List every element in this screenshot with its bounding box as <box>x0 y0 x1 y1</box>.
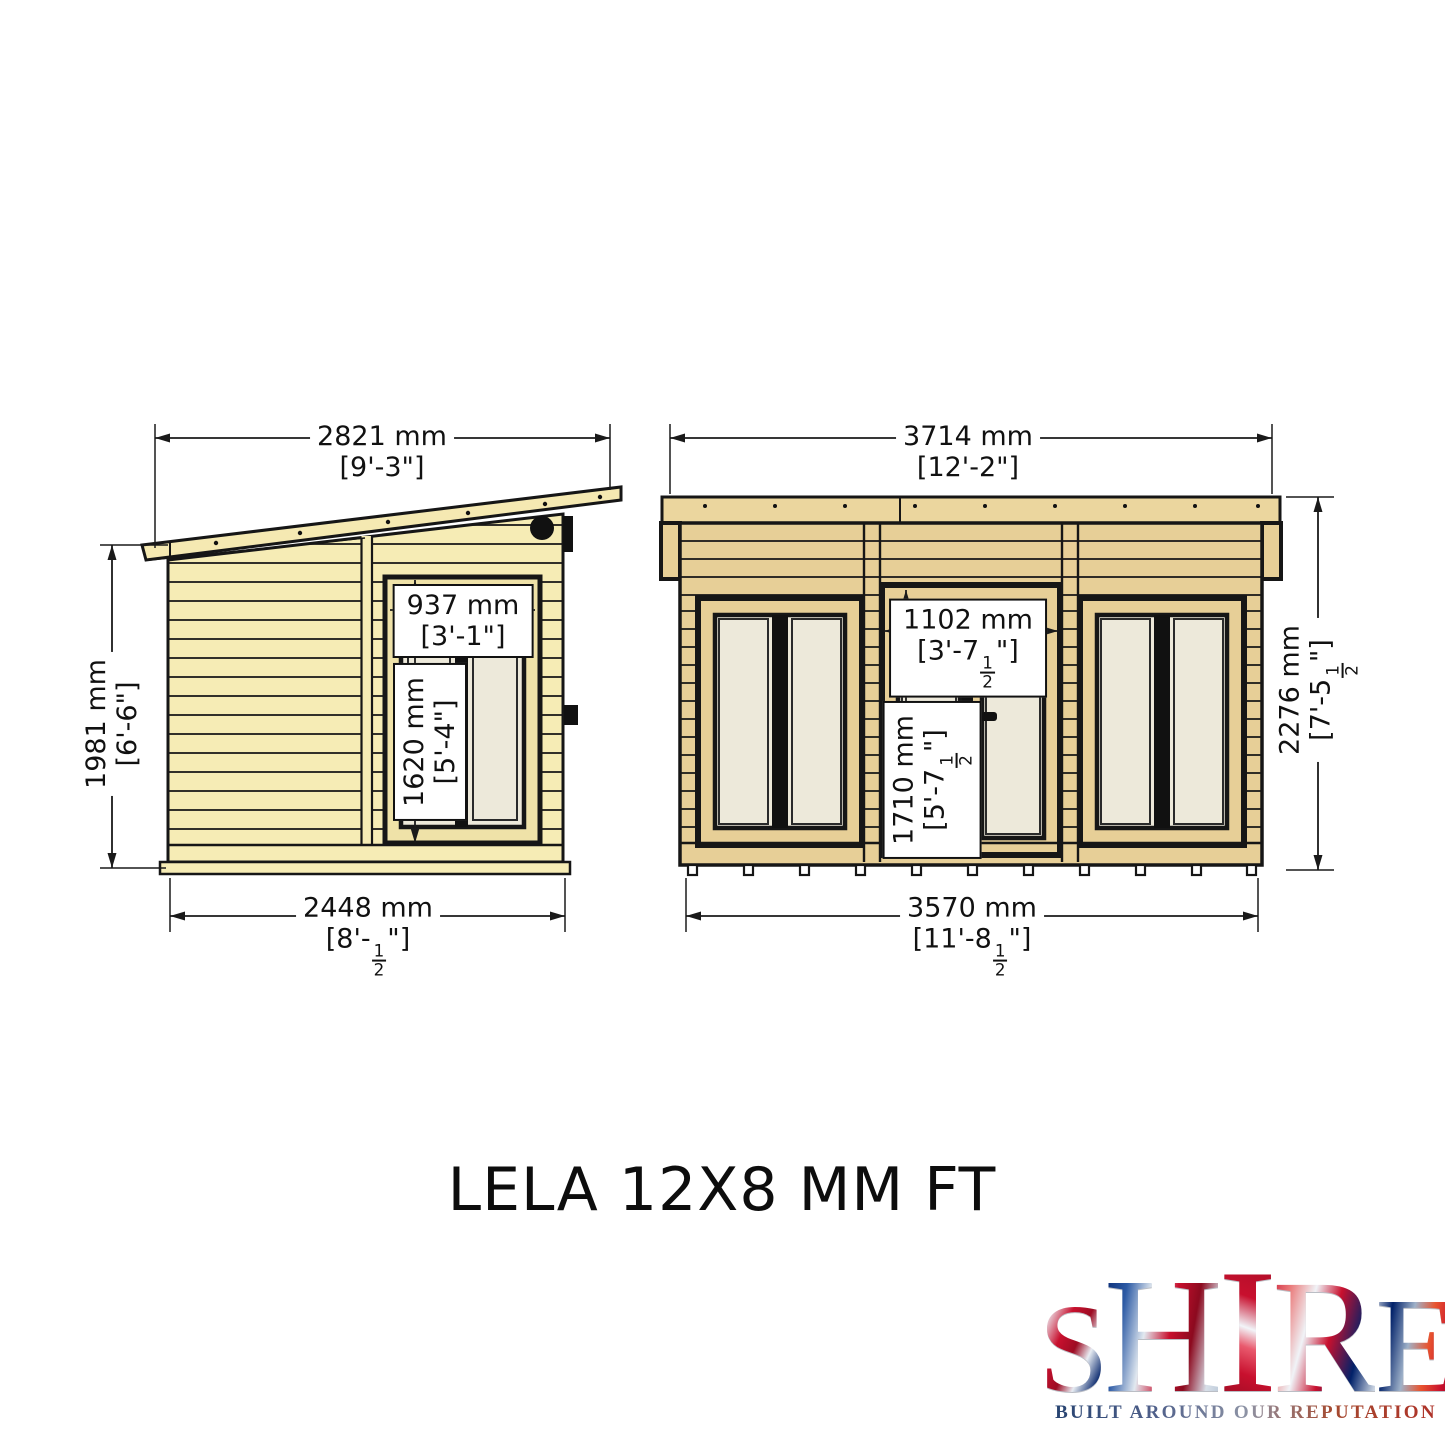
dim-mm: 1620 mm <box>399 677 430 807</box>
logo-letter-e: E <box>1375 1278 1445 1414</box>
dim-front-base-width: 3570 mm [11'-812"] <box>900 892 1044 981</box>
dim-mm: 1102 mm <box>903 605 1033 636</box>
dim-mm: 1710 mm <box>889 715 920 845</box>
dim-mm: 2448 mm <box>303 893 433 924</box>
side-door-latch <box>564 705 578 725</box>
elevation-line-art <box>0 0 1445 1445</box>
dim-side-wall-height: 1981 mm [6'-6"] <box>80 652 144 796</box>
dim-ft: [9'-3"] <box>317 452 447 483</box>
dim-front-overall-height: 2276 mm [7'-512"] <box>1274 618 1363 762</box>
dim-ft: [11'-812"] <box>907 924 1037 980</box>
dim-front-roof-width: 3714 mm [12'-2"] <box>896 420 1040 484</box>
dim-front-door-width: 1102 mm [3'-712"] <box>889 599 1047 698</box>
shire-logo: S H I R E BUILT AROUND OUR REPUTATION <box>1046 1242 1445 1432</box>
dim-mm: 1981 mm <box>81 659 112 789</box>
front-corner-trim-right <box>1262 523 1281 579</box>
dim-mm: 2821 mm <box>317 421 447 452</box>
dim-ft: [5'-712"] <box>920 715 976 845</box>
dim-ft: [3'-712"] <box>903 636 1033 692</box>
logo-tagline: BUILT AROUND OUR REPUTATION <box>1046 1402 1445 1424</box>
side-base-board <box>160 862 570 874</box>
dim-front-door-height: 1710 mm [5'-712"] <box>883 701 982 859</box>
front-window-right <box>1080 598 1244 845</box>
dim-side-window-width: 937 mm [3'-1"] <box>393 584 534 658</box>
front-roof-fascia <box>662 497 1280 523</box>
side-eaves-bracket <box>563 516 573 552</box>
dim-side-base-width: 2448 mm [8'-12"] <box>296 892 440 981</box>
dim-ft: [12'-2"] <box>903 452 1033 483</box>
dim-ft: [5'-4"] <box>430 677 461 807</box>
side-wall-divider <box>362 536 373 845</box>
logo-letter-i: I <box>1218 1242 1272 1420</box>
dim-ft: [6'-6"] <box>112 659 143 789</box>
dim-ft: [8'-12"] <box>303 924 433 980</box>
drawing-sheet: 2821 mm [9'-3"] 1981 mm [6'-6"] 2448 mm … <box>0 0 1445 1445</box>
dim-mm: 937 mm <box>407 590 520 621</box>
dim-side-roof-width: 2821 mm [9'-3"] <box>310 420 454 484</box>
logo-letter-s: S <box>1039 1287 1104 1413</box>
drawing-title: LELA 12X8 MM FT <box>448 1155 997 1225</box>
logo-letter-r: R <box>1272 1257 1375 1419</box>
side-elevation <box>142 487 621 874</box>
side-roof-vent <box>530 516 554 540</box>
logo-letter-h: H <box>1104 1253 1218 1418</box>
logo-wordmark: S H I R E <box>1046 1242 1445 1392</box>
dim-ft: [3'-1"] <box>407 621 520 652</box>
dim-mm: 3570 mm <box>907 893 1037 924</box>
dim-mm: 2276 mm <box>1275 625 1306 755</box>
front-window-left <box>698 598 862 845</box>
dim-side-window-height: 1620 mm [5'-4"] <box>393 663 467 821</box>
dim-mm: 3714 mm <box>903 421 1033 452</box>
front-corner-trim-left <box>661 523 680 579</box>
dim-ft: [7'-512"] <box>1306 625 1362 755</box>
